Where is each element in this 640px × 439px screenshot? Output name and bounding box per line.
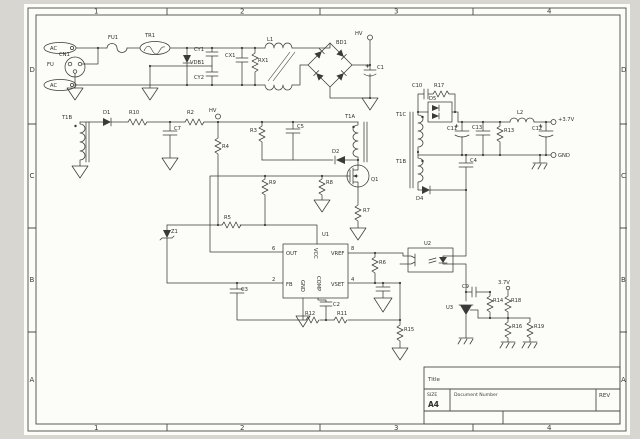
- r2-label: R2: [187, 110, 194, 116]
- u1-pin-comp: COMP: [315, 276, 321, 291]
- u1-pin6: 6: [272, 246, 275, 252]
- size-value: A4: [428, 400, 439, 409]
- u2-label: U2: [424, 241, 431, 247]
- rx1-label: RX1: [258, 58, 268, 64]
- d4-label: D4: [416, 196, 424, 202]
- r7-label: R7: [363, 208, 370, 214]
- cy2-label: CY2: [194, 75, 204, 81]
- r18-label: R18: [511, 298, 521, 304]
- u1-pin-vcc: VCC: [312, 248, 318, 259]
- v37-label: 3.7V: [498, 280, 510, 286]
- c13-label: C13: [472, 125, 482, 131]
- c11-label: C11: [447, 126, 457, 132]
- ac1-label: AC: [50, 46, 57, 52]
- title-label: Title: [427, 377, 441, 383]
- c3-label: C3: [241, 287, 248, 293]
- zone-row-c-right: C: [621, 172, 626, 180]
- fu-label: FU: [47, 62, 54, 68]
- hv-mid-label: HV: [209, 108, 217, 114]
- r19-label: R19: [534, 324, 544, 330]
- u1-pin2: 2: [272, 277, 275, 283]
- t1c-label: T1C: [395, 112, 406, 118]
- schematic-sheet: 1 2 3 4 1 2 3 4 D C B A D C B A Title SI…: [0, 0, 640, 439]
- c7-label: C7: [174, 126, 181, 132]
- c4-label: C4: [470, 158, 478, 164]
- r17-label: R17: [434, 83, 444, 89]
- r16-label: R16: [512, 324, 522, 330]
- q1-label: Q1: [371, 177, 378, 183]
- d2-label: D2: [332, 149, 339, 155]
- d1-label: D1: [103, 110, 110, 116]
- gnd-label: GND: [558, 153, 570, 159]
- paper: [24, 4, 630, 435]
- u3-label: U3: [446, 305, 453, 311]
- u1-pin8: 8: [351, 246, 354, 252]
- r10-label: R10: [129, 110, 139, 116]
- u1-pin-out: OUT: [286, 251, 298, 257]
- r3-label: R3: [250, 128, 257, 134]
- zone-col-4-top: 4: [547, 8, 552, 16]
- r13-label: R13: [504, 128, 514, 134]
- cy1-label: CY1: [194, 47, 204, 53]
- u1-pin-vref: VREF: [331, 251, 344, 257]
- zone-col-1-top: 1: [94, 8, 98, 16]
- zone-row-c-left: C: [30, 172, 35, 180]
- tr1-label: TR1: [144, 33, 155, 39]
- c12-label: C12: [532, 126, 542, 132]
- vdb1-label: VDB1: [190, 60, 204, 66]
- r15-label: R15: [404, 327, 414, 333]
- size-label: SIZE: [427, 392, 437, 398]
- zone-col-2-bot: 2: [240, 424, 244, 432]
- u1-pin-vset: VSET: [331, 282, 345, 288]
- zone-col-1-bot: 1: [94, 424, 98, 432]
- c2-label: C2: [333, 302, 340, 308]
- zone-col-3-top: 3: [394, 8, 398, 16]
- r14-label: R14: [493, 298, 504, 304]
- c9-label: C9: [462, 284, 469, 290]
- zone-col-2-top: 2: [240, 8, 244, 16]
- c5-label: C5: [297, 124, 304, 130]
- z1-label: Z1: [171, 229, 178, 235]
- zone-row-d-left: D: [30, 66, 35, 74]
- r4-label: R4: [222, 144, 230, 150]
- c1-label: C1: [377, 65, 384, 71]
- r6-label: R6: [379, 260, 386, 266]
- t1a-label: T1A: [344, 114, 355, 120]
- r12-label: R12: [305, 311, 315, 317]
- t1b-sec-label: T1B: [395, 159, 406, 165]
- zone-row-a-right: A: [621, 376, 626, 384]
- cx1-label: CX1: [225, 53, 235, 59]
- zone-col-4-bot: 4: [547, 424, 552, 432]
- rev-label: REV: [599, 393, 610, 399]
- r11-label: R11: [337, 311, 347, 317]
- zone-row-b-left: B: [30, 276, 35, 284]
- vout-label: +3.7V: [558, 117, 575, 123]
- ac2-label: AC: [50, 83, 57, 89]
- cn1-label: CN1: [59, 52, 70, 58]
- sheet-frame: 1 2 3 4 1 2 3 4 D C B A D C B A: [24, 4, 630, 435]
- u1-pin-fb: FB: [286, 282, 293, 288]
- hv-top-label: HV: [355, 31, 363, 37]
- bd1-label: BD1: [336, 40, 347, 46]
- d5-label: D5: [429, 96, 436, 102]
- l1-label: L1: [267, 37, 273, 43]
- r5-label: R5: [224, 215, 231, 221]
- c10-label: C10: [412, 83, 422, 89]
- zone-row-b-right: B: [621, 276, 626, 284]
- t1b-aux-label: T1B: [61, 115, 72, 121]
- doc-number-label: Document Number: [454, 392, 498, 398]
- zone-row-d-right: D: [621, 66, 626, 74]
- zone-col-3-bot: 3: [394, 424, 398, 432]
- r8-label: R8: [326, 180, 333, 186]
- fu1-label: FU1: [108, 35, 118, 41]
- u1-label: U1: [322, 232, 329, 238]
- u1-pin-gnd: GND: [299, 280, 305, 292]
- r9-label: R9: [269, 180, 276, 186]
- l2-label: L2: [517, 110, 523, 116]
- zone-row-a-left: A: [30, 376, 35, 384]
